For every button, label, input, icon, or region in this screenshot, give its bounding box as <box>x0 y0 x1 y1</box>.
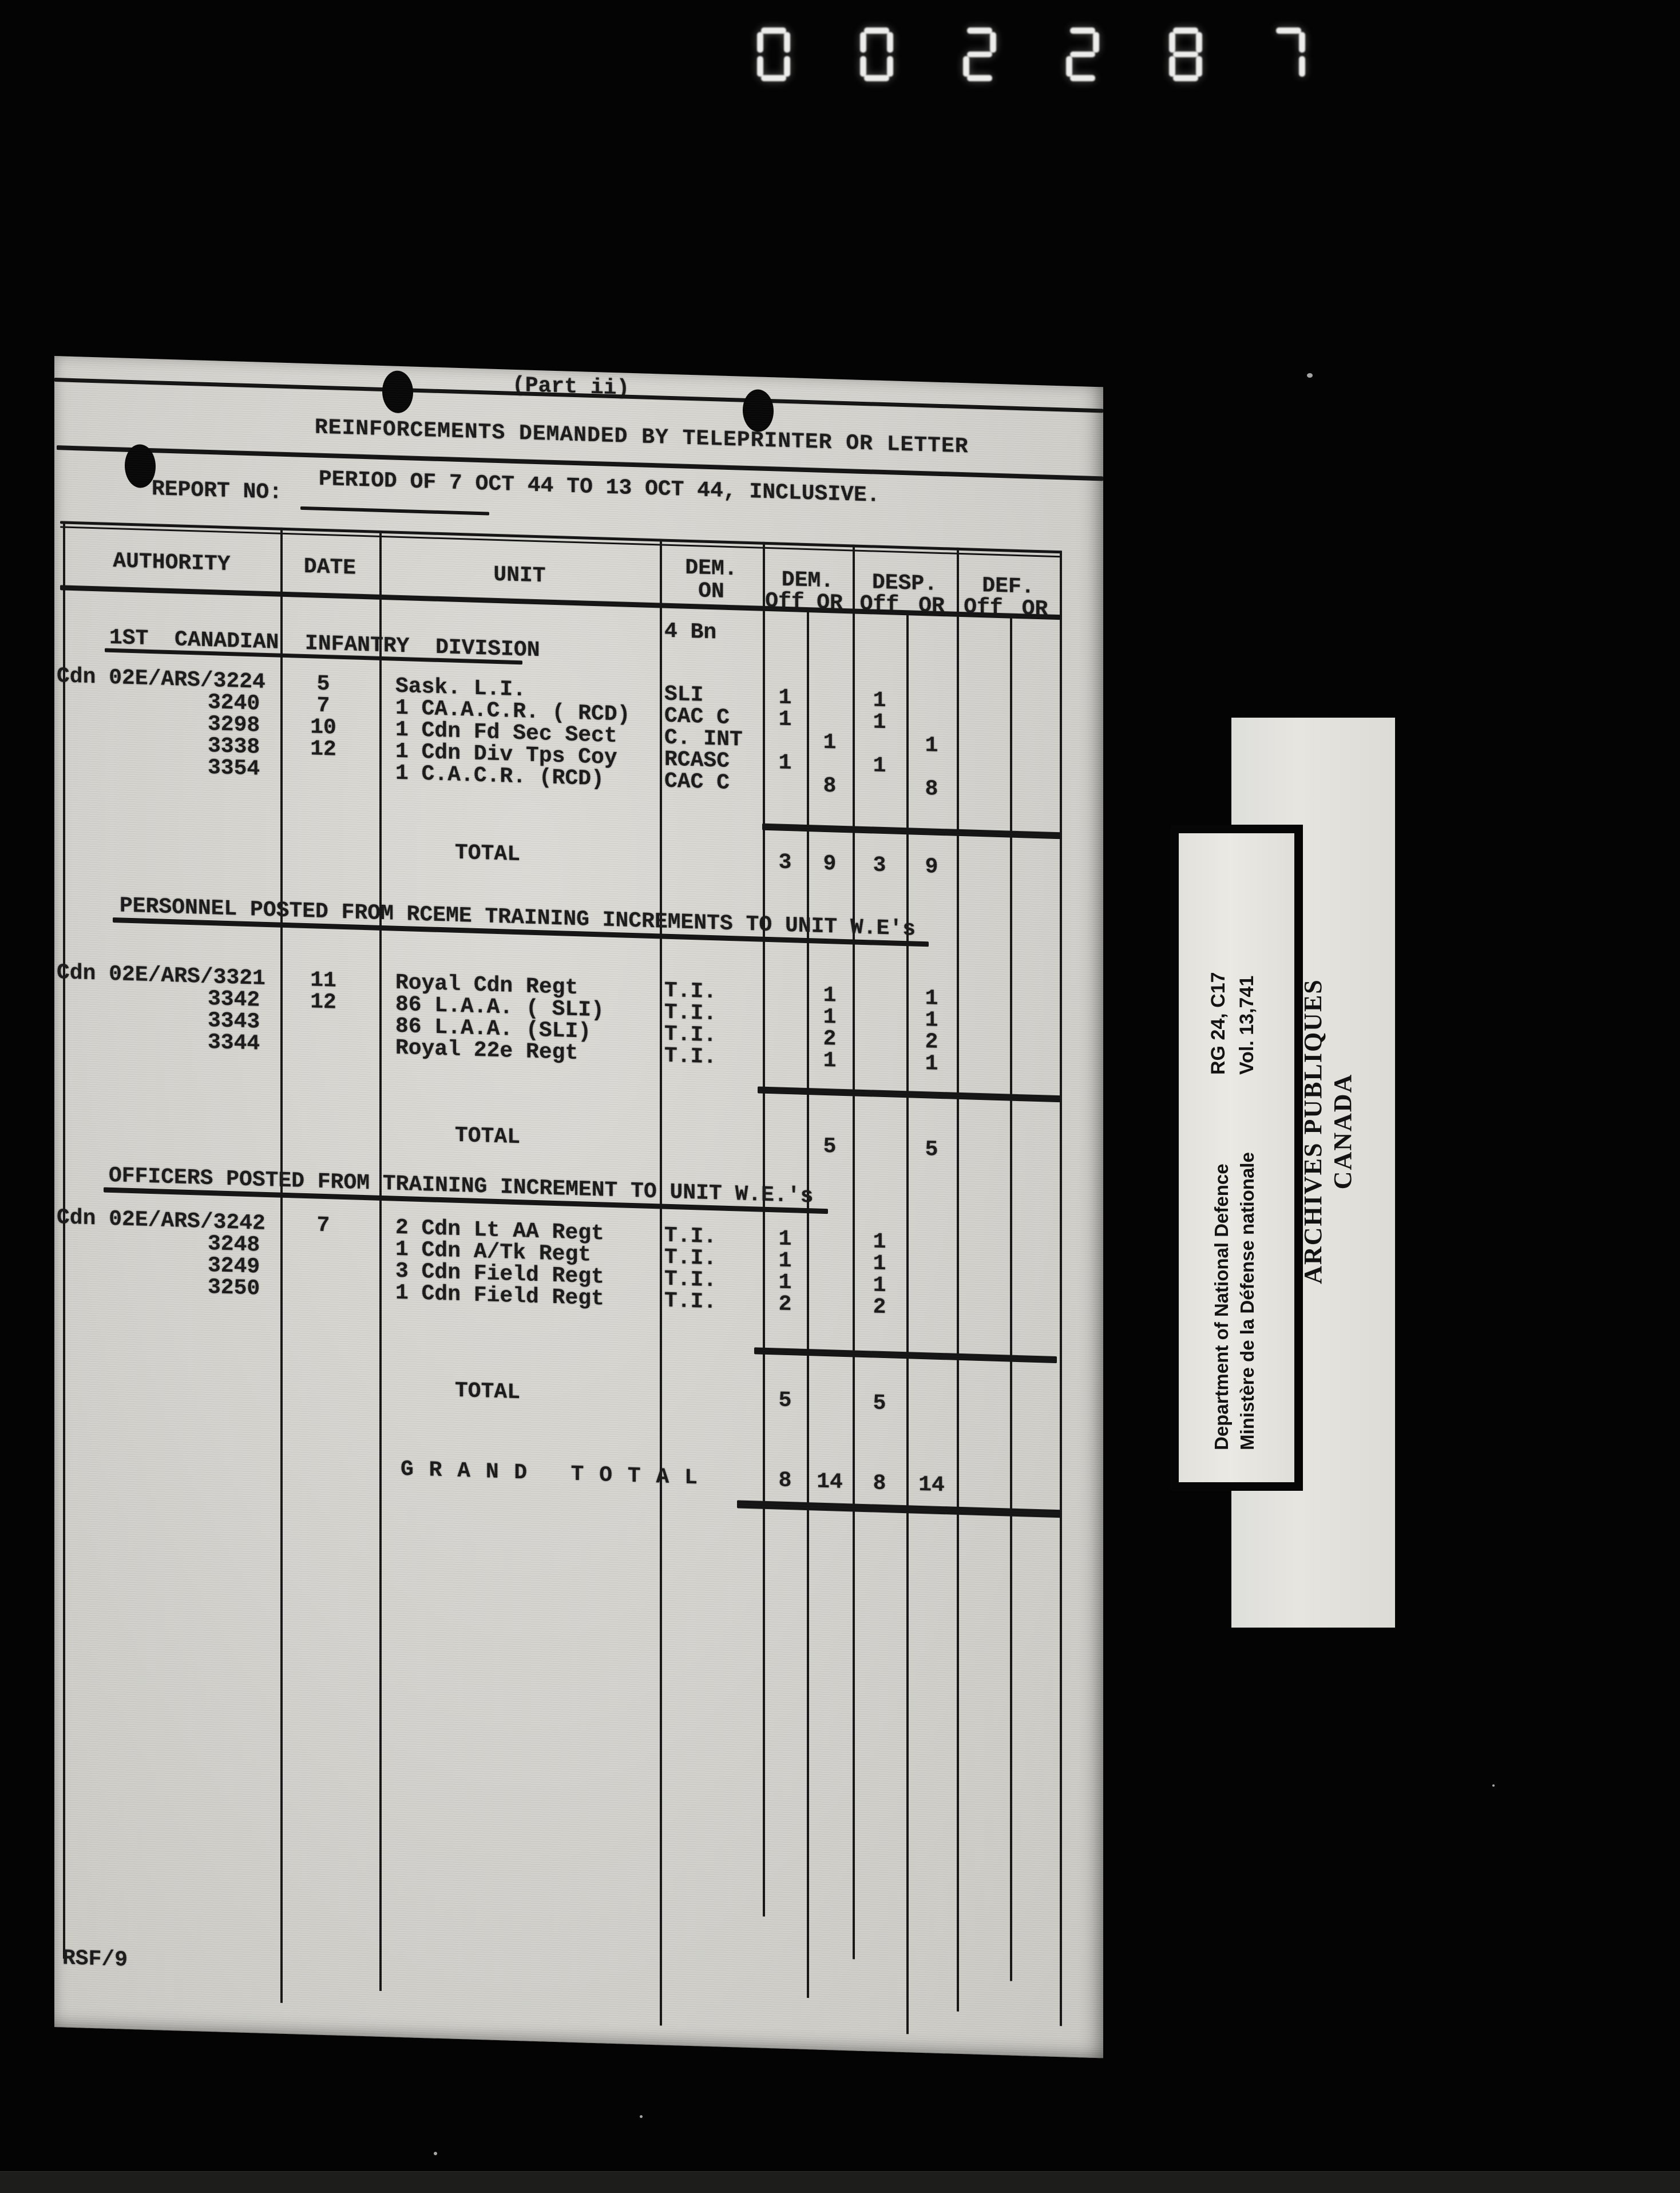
total-label: TOTAL <box>455 1380 520 1404</box>
desp-off-cell: 1 <box>857 1252 902 1276</box>
reference-line2: Vol. 13,741 <box>1236 976 1258 1075</box>
unit-cell: 1 Cdn Field Regt <box>395 1282 604 1311</box>
dem-off-cell: 1 <box>762 1271 808 1295</box>
department-stamp-rotated-text: Department of National DefenceMinistère … <box>1179 833 1294 1482</box>
report-no-label: REPORT NO: <box>152 478 282 505</box>
desp-off-grand: 8 <box>857 1472 902 1496</box>
unit-cell: Royal 22e Regt <box>395 1037 578 1065</box>
film-edge-strip <box>0 2171 1680 2193</box>
counter-digit <box>1270 26 1307 82</box>
microfilm-frame: (Part ii) REINFORCEMENTS DEMANDED BY TEL… <box>0 0 1680 2193</box>
total-label: TOTAL <box>455 1125 520 1149</box>
department-stamp-card: Department of National DefenceMinistère … <box>1179 833 1294 1482</box>
col-header-date: DATE <box>280 555 379 581</box>
dem-on-cell: CAC C <box>664 770 730 795</box>
total-label: TOTAL <box>455 842 520 866</box>
authority-cell: 3344 <box>208 1031 260 1056</box>
footer-code: RSF/9 <box>62 1947 128 1972</box>
desp-off-cell: 1 <box>857 689 902 713</box>
desp-off-total: 5 <box>857 1392 902 1416</box>
dust-speck <box>1307 373 1313 378</box>
column-line <box>379 531 382 1991</box>
col-header-dem-on: ON <box>660 579 763 604</box>
counter-digit <box>1167 26 1204 82</box>
punch-hole <box>382 370 413 414</box>
department-stamp-text: Department of National DefenceMinistère … <box>1209 1152 1260 1450</box>
dem-off-cell: 1 <box>762 708 808 732</box>
authority-cell: Cdn 02E/ARS/3321 <box>57 961 266 991</box>
desp-off-cell: 1 <box>857 1274 902 1298</box>
column-line <box>1010 618 1012 1981</box>
dem-or-cell: 2 <box>807 1027 853 1051</box>
counter-digit <box>858 26 895 82</box>
blank-underline <box>300 506 489 516</box>
counter-digit <box>961 26 998 82</box>
column-line <box>63 521 65 1958</box>
desp-or-cell: 1 <box>909 1052 954 1076</box>
counter-digit <box>1064 26 1101 82</box>
dem-on-note: 4 Bn <box>664 620 716 645</box>
desp-or-cell: 1 <box>909 987 954 1011</box>
dem-or-cell: 1 <box>807 984 853 1008</box>
desp-off-cell: 1 <box>857 754 902 778</box>
dem-off-grand: 8 <box>762 1469 808 1493</box>
period-line: PERIOD OF 7 OCT 44 TO 13 OCT 44, INCLUSI… <box>319 468 880 508</box>
dem-off-cell: 2 <box>762 1293 808 1317</box>
film-frame-counter <box>755 26 1307 82</box>
authority-cell: 3354 <box>208 757 260 781</box>
col-header-dem-on: DEM. <box>660 556 763 581</box>
desp-or-cell: 1 <box>909 734 954 758</box>
date-cell: 12 <box>289 737 358 762</box>
date-cell: 12 <box>289 990 358 1015</box>
column-line <box>1060 551 1062 2026</box>
desp-or-cell: 8 <box>909 777 954 801</box>
reference-stamp-text: RG 24, C17Vol. 13,741 <box>1204 972 1261 1075</box>
grand-total-row: G R A N D T O T A L 8 14 8 14 <box>54 1448 1103 1479</box>
authority-cell: Cdn 02E/ARS/3224 <box>57 665 266 694</box>
dem-or-cell: 8 <box>807 774 853 798</box>
document-page: (Part ii) REINFORCEMENTS DEMANDED BY TEL… <box>54 356 1103 2058</box>
dust-speck <box>434 2152 437 2155</box>
column-line <box>280 528 283 2003</box>
total-row: TOTAL 5 5 <box>54 1113 1103 1143</box>
archives-line2: ARCHIVES PUBLIQUES <box>1298 979 1328 1284</box>
document-title: REINFORCEMENTS DEMANDED BY TELEPRINTER O… <box>315 417 969 459</box>
dem-off-cell: 1 <box>762 1249 808 1273</box>
col-header-authority: AUTHORITY <box>63 548 280 577</box>
desp-or-total: 9 <box>909 855 954 879</box>
desp-off-cell: 1 <box>857 1230 902 1254</box>
subtotal-rule <box>758 1086 1061 1102</box>
dust-speck <box>1492 1784 1495 1787</box>
counter-digit <box>755 26 792 82</box>
desp-or-total: 5 <box>909 1138 954 1162</box>
reference-line1: RG 24, C17 <box>1207 972 1229 1075</box>
unit-cell: 1 C.A.C.R. (RCD) <box>395 762 604 791</box>
dem-off-total: 5 <box>762 1389 808 1413</box>
dem-or-cell: 1 <box>807 731 853 755</box>
dem-off-cell: 1 <box>762 686 808 710</box>
dem-or-grand: 14 <box>807 1470 853 1494</box>
total-row: TOTAL 5 5 <box>54 1368 1103 1399</box>
dem-or-total: 9 <box>807 852 853 876</box>
grand-total-label: G R A N D T O T A L <box>401 1458 699 1490</box>
punch-hole <box>125 444 156 489</box>
dem-on-cell: T.I. <box>664 1045 716 1070</box>
desp-off-cell: 1 <box>857 711 902 735</box>
desp-off-total: 3 <box>857 854 902 878</box>
dem-on-cell: T.I. <box>664 1290 716 1315</box>
col-header-unit: UNIT <box>379 560 660 592</box>
date-cell: 7 <box>289 1213 358 1238</box>
grand-total-rule <box>737 1500 1061 1518</box>
archives-line3: CANADA <box>1328 1074 1358 1190</box>
department-line2: Ministère de la Défense nationale <box>1237 1152 1258 1450</box>
authority-cell: 3250 <box>208 1276 260 1301</box>
column-line <box>853 544 855 1959</box>
punch-hole <box>743 389 774 433</box>
desp-or-cell: 1 <box>909 1008 954 1032</box>
dust-speck <box>640 2115 643 2118</box>
desp-or-grand: 14 <box>909 1473 954 1497</box>
dem-off-total: 3 <box>762 851 808 875</box>
table-top-border <box>60 521 1061 553</box>
authority-cell: Cdn 02E/ARS/3242 <box>57 1206 266 1236</box>
desp-off-cell: 2 <box>857 1296 902 1320</box>
dem-off-cell: 1 <box>762 751 808 775</box>
column-line <box>957 548 959 2012</box>
dem-or-cell: 1 <box>807 1049 853 1073</box>
desp-or-cell: 2 <box>909 1030 954 1054</box>
department-line1: Department of National Defence <box>1211 1163 1232 1450</box>
dem-or-total: 5 <box>807 1135 853 1159</box>
dem-off-cell: 1 <box>762 1228 808 1252</box>
dem-or-cell: 1 <box>807 1006 853 1030</box>
column-line <box>660 539 662 2025</box>
